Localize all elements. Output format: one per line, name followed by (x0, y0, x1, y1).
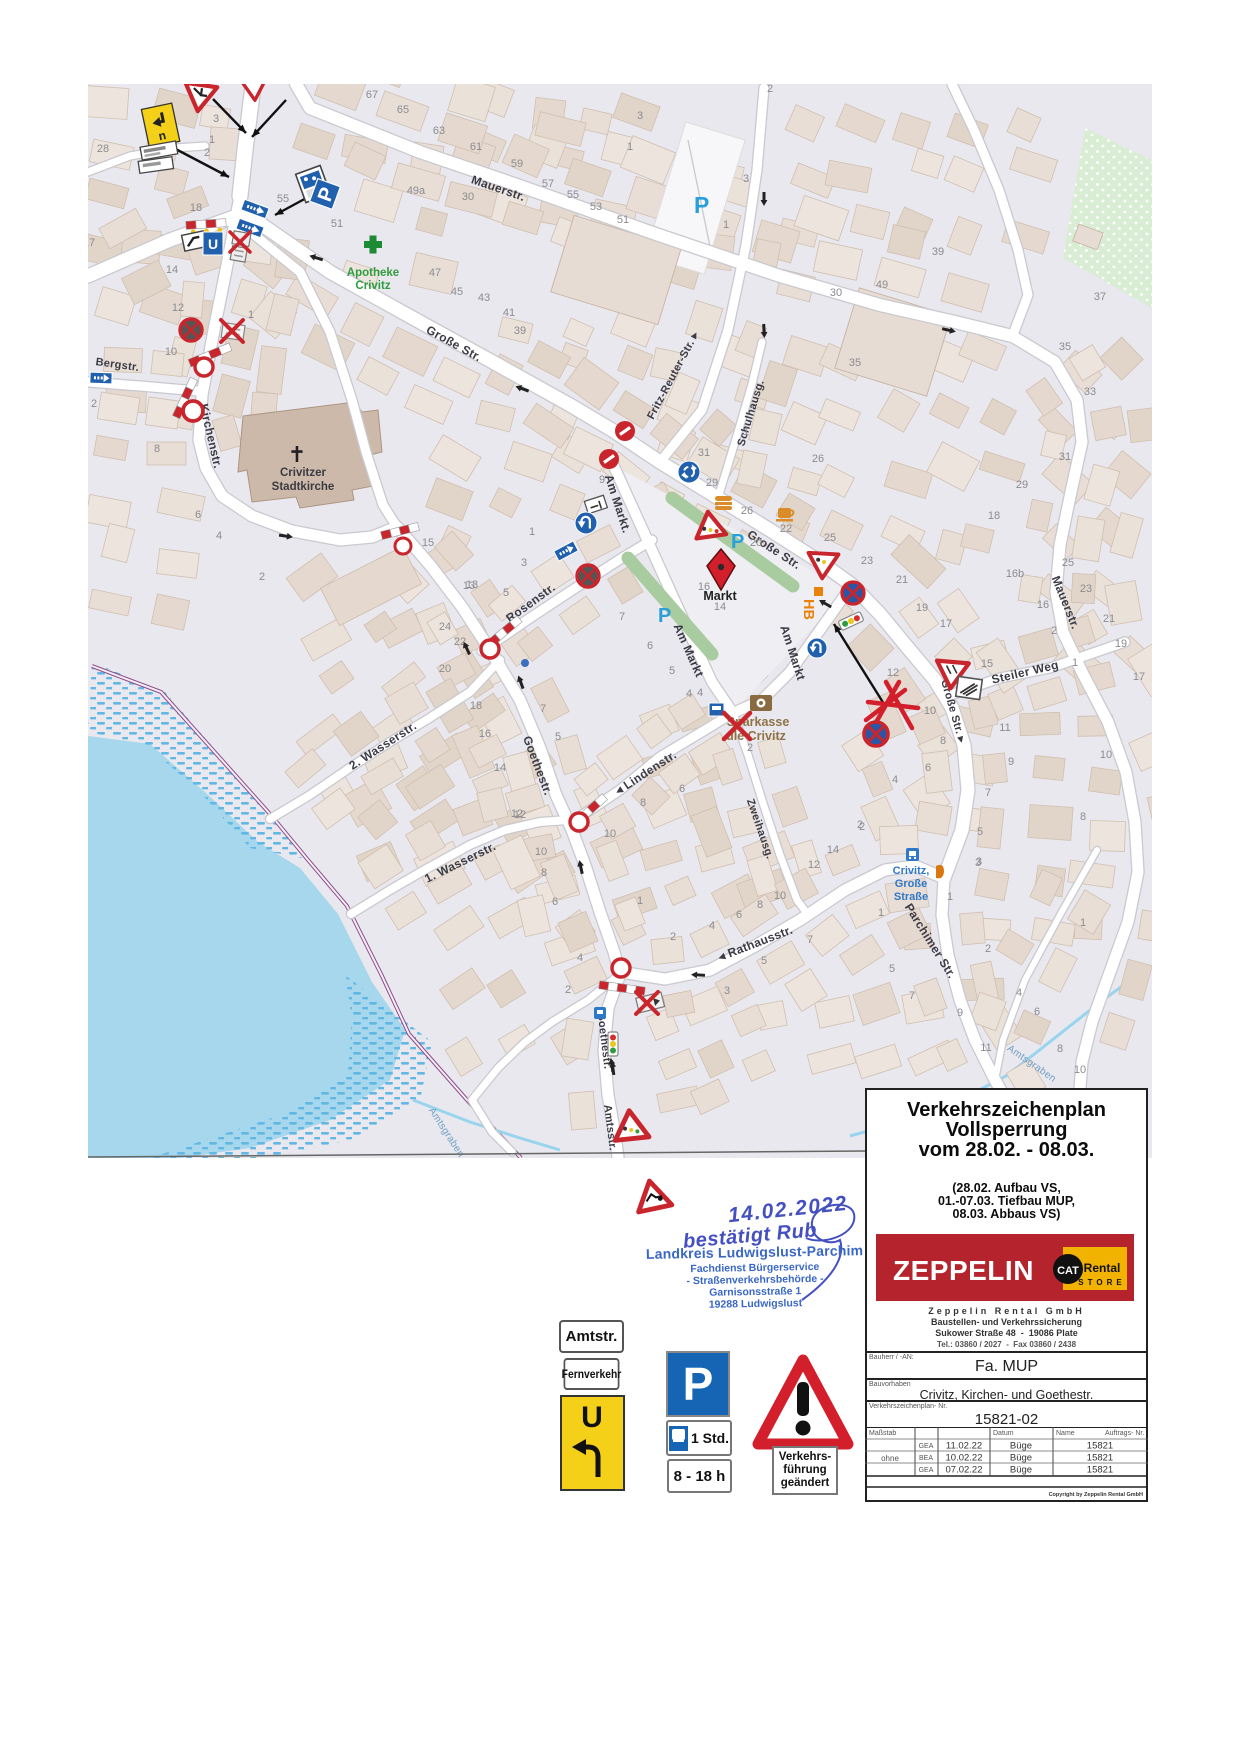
svg-text:63: 63 (433, 125, 445, 137)
svg-text:Büge: Büge (1010, 1441, 1032, 1452)
svg-text:1: 1 (248, 309, 254, 321)
svg-text:1: 1 (637, 895, 643, 907)
svg-text:U: U (208, 236, 218, 252)
svg-text:30: 30 (830, 287, 842, 299)
svg-text:65: 65 (397, 104, 409, 116)
svg-text:29: 29 (1016, 479, 1028, 491)
svg-text:31: 31 (698, 447, 710, 459)
svg-text:16b: 16b (1006, 568, 1024, 580)
svg-text:P: P (731, 531, 744, 553)
svg-text:18: 18 (988, 510, 1000, 522)
svg-text:57: 57 (542, 178, 554, 190)
svg-text:11.02.22: 11.02.22 (946, 1441, 982, 1452)
svg-text:29: 29 (706, 477, 718, 489)
svg-text:51: 51 (617, 214, 629, 226)
svg-text:1: 1 (1072, 657, 1078, 669)
svg-text:2: 2 (747, 742, 753, 754)
svg-text:5: 5 (977, 826, 983, 838)
svg-text:2: 2 (857, 819, 863, 831)
svg-text:10: 10 (604, 828, 616, 840)
svg-text:9: 9 (957, 1007, 963, 1019)
svg-text:17: 17 (83, 237, 95, 249)
svg-text:ohne: ohne (881, 1454, 899, 1463)
svg-text:39: 39 (514, 325, 526, 337)
svg-text:5: 5 (669, 665, 675, 677)
svg-text:47: 47 (429, 267, 441, 279)
svg-text:2: 2 (565, 984, 571, 996)
svg-text:P: P (658, 605, 671, 627)
svg-text:25: 25 (1062, 557, 1074, 569)
svg-text:24: 24 (439, 621, 451, 633)
svg-text:Büge: Büge (1010, 1465, 1032, 1476)
svg-text:2: 2 (91, 398, 97, 410)
svg-text:67: 67 (366, 89, 378, 101)
svg-text:4: 4 (686, 688, 692, 700)
svg-text:49a: 49a (407, 185, 426, 197)
svg-text:6: 6 (647, 640, 653, 652)
svg-text:6: 6 (925, 762, 931, 774)
svg-text:✝: ✝ (288, 442, 306, 467)
svg-text:15: 15 (422, 537, 434, 549)
svg-text:Straße: Straße (894, 891, 928, 903)
svg-text:Markt: Markt (703, 589, 737, 603)
svg-text:2: 2 (1051, 625, 1057, 637)
svg-text:4: 4 (216, 530, 222, 542)
svg-text:13: 13 (466, 579, 478, 591)
svg-text:1: 1 (878, 907, 884, 919)
svg-text:2: 2 (259, 571, 265, 583)
svg-text:1: 1 (627, 141, 633, 153)
svg-text:Stadtkirche: Stadtkirche (272, 481, 335, 493)
svg-text:16: 16 (479, 728, 491, 740)
svg-text:10: 10 (1100, 749, 1112, 761)
svg-text:9: 9 (599, 474, 605, 486)
svg-text:14: 14 (827, 844, 839, 856)
svg-text:53: 53 (590, 201, 602, 213)
svg-text:6: 6 (1034, 1006, 1040, 1018)
svg-text:14: 14 (166, 264, 178, 276)
svg-text:7: 7 (619, 611, 625, 623)
svg-text:15821: 15821 (1087, 1465, 1113, 1476)
svg-text:6: 6 (552, 896, 558, 908)
svg-text:BEA: BEA (919, 1455, 933, 1462)
svg-text:17: 17 (940, 618, 952, 630)
svg-text:Crivitz: Crivitz (355, 280, 390, 292)
svg-text:2: 2 (670, 931, 676, 943)
svg-text:15821: 15821 (1087, 1441, 1113, 1452)
svg-text:35: 35 (1059, 341, 1071, 353)
svg-text:8: 8 (154, 443, 160, 455)
svg-text:2: 2 (985, 943, 991, 955)
svg-text:5: 5 (503, 587, 509, 599)
svg-text:14: 14 (494, 762, 506, 774)
svg-text:Datum: Datum (993, 1430, 1014, 1437)
svg-text:Crivitz,: Crivitz, (893, 865, 930, 877)
svg-text:4: 4 (709, 920, 715, 932)
svg-text:Apotheke: Apotheke (347, 267, 399, 279)
svg-text:4: 4 (577, 952, 583, 964)
svg-text:8: 8 (940, 735, 946, 747)
svg-text:GEA: GEA (919, 1443, 934, 1450)
svg-text:12: 12 (511, 808, 523, 820)
svg-text:7: 7 (807, 934, 813, 946)
svg-text:Maßstab: Maßstab (869, 1430, 896, 1437)
svg-text:5: 5 (889, 963, 895, 975)
svg-text:55: 55 (277, 193, 289, 205)
svg-text:4: 4 (1016, 987, 1022, 999)
svg-text:ule Crivitz: ule Crivitz (726, 729, 786, 743)
svg-text:Auftrags- Nr.: Auftrags- Nr. (1105, 1430, 1144, 1437)
svg-text:20: 20 (439, 663, 451, 675)
svg-text:2: 2 (767, 83, 773, 95)
svg-text:18: 18 (470, 700, 482, 712)
svg-text:31: 31 (1059, 451, 1071, 463)
svg-text:61: 61 (470, 141, 482, 153)
svg-text:10: 10 (535, 846, 547, 858)
svg-text:12: 12 (172, 302, 184, 314)
svg-text:45: 45 (451, 286, 463, 298)
svg-text:3: 3 (743, 173, 749, 185)
svg-text:10: 10 (1074, 1064, 1086, 1076)
svg-text:5: 5 (761, 955, 767, 967)
svg-text:51: 51 (331, 218, 343, 230)
svg-text:3: 3 (521, 557, 527, 569)
svg-text:Büge: Büge (1010, 1453, 1032, 1464)
svg-text:Name: Name (1056, 1430, 1075, 1437)
svg-text:P: P (694, 192, 709, 218)
svg-text:10: 10 (774, 890, 786, 902)
svg-text:7: 7 (540, 703, 546, 715)
svg-text:37: 37 (1094, 291, 1106, 303)
svg-text:43: 43 (478, 292, 490, 304)
svg-text:26: 26 (741, 505, 753, 517)
svg-text:41: 41 (503, 307, 515, 319)
svg-text:8: 8 (541, 867, 547, 879)
svg-text:HB: HB (800, 599, 816, 620)
svg-text:4: 4 (697, 687, 703, 699)
svg-text:07.02.22: 07.02.22 (946, 1465, 983, 1476)
svg-text:18: 18 (190, 202, 202, 214)
svg-text:9: 9 (1008, 756, 1014, 768)
svg-text:15: 15 (981, 658, 993, 670)
svg-text:55: 55 (567, 189, 579, 201)
svg-text:8: 8 (1057, 1043, 1063, 1055)
svg-text:20: 20 (750, 537, 762, 549)
svg-text:35: 35 (849, 357, 861, 369)
svg-text:Große: Große (895, 878, 927, 890)
svg-text:3: 3 (724, 985, 730, 997)
svg-text:12: 12 (887, 667, 899, 679)
svg-text:8: 8 (1080, 811, 1086, 823)
svg-text:GEA: GEA (919, 1467, 934, 1474)
svg-text:1: 1 (947, 891, 953, 903)
svg-text:6: 6 (736, 909, 742, 921)
svg-text:1: 1 (1080, 917, 1086, 929)
svg-text:6: 6 (195, 509, 201, 521)
svg-text:U: U (581, 1401, 603, 1434)
svg-text:8: 8 (757, 899, 763, 911)
svg-text:7: 7 (985, 787, 991, 799)
svg-text:25: 25 (824, 532, 836, 544)
svg-text:CAT: CAT (1057, 1265, 1079, 1277)
svg-text:7: 7 (909, 990, 915, 1002)
svg-text:19: 19 (916, 602, 928, 614)
svg-text:Crivitzer: Crivitzer (280, 467, 327, 479)
svg-text:1: 1 (723, 219, 729, 231)
svg-text:33: 33 (1084, 386, 1096, 398)
svg-text:16: 16 (1037, 599, 1049, 611)
svg-text:39: 39 (932, 246, 944, 258)
svg-text:49: 49 (876, 279, 888, 291)
svg-text:15821: 15821 (1087, 1453, 1113, 1464)
svg-text:23: 23 (1080, 583, 1092, 595)
svg-text:28: 28 (97, 143, 109, 155)
svg-text:10: 10 (165, 346, 177, 358)
svg-text:11: 11 (980, 1042, 991, 1054)
svg-text:21: 21 (1103, 613, 1115, 625)
svg-text:3: 3 (213, 113, 219, 125)
svg-text:5: 5 (555, 731, 561, 743)
svg-text:1: 1 (529, 526, 535, 538)
svg-text:Copyright by Zeppelin Rental G: Copyright by Zeppelin Rental GmbH (1049, 1492, 1143, 1498)
svg-text:19: 19 (1115, 638, 1127, 650)
svg-text:10: 10 (924, 705, 936, 717)
svg-text:30: 30 (462, 191, 474, 203)
svg-text:21: 21 (896, 574, 908, 586)
svg-text:59: 59 (511, 158, 523, 170)
svg-text:26: 26 (812, 453, 824, 465)
svg-text:3: 3 (637, 110, 643, 122)
svg-text:1: 1 (743, 426, 749, 438)
svg-text:10.02.22: 10.02.22 (946, 1453, 983, 1464)
svg-text:STORE: STORE (1078, 1278, 1125, 1287)
svg-text:11: 11 (999, 722, 1010, 734)
svg-text:1: 1 (209, 134, 215, 146)
svg-text:Rental: Rental (1084, 1261, 1121, 1275)
svg-text:8: 8 (640, 797, 646, 809)
svg-text:23: 23 (861, 555, 873, 567)
svg-text:2: 2 (204, 147, 210, 159)
svg-text:3: 3 (975, 857, 981, 869)
svg-text:17: 17 (1133, 671, 1145, 683)
svg-text:6: 6 (679, 783, 685, 795)
svg-text:4: 4 (892, 774, 898, 786)
svg-text:22: 22 (780, 523, 792, 535)
svg-text:12: 12 (808, 859, 820, 871)
